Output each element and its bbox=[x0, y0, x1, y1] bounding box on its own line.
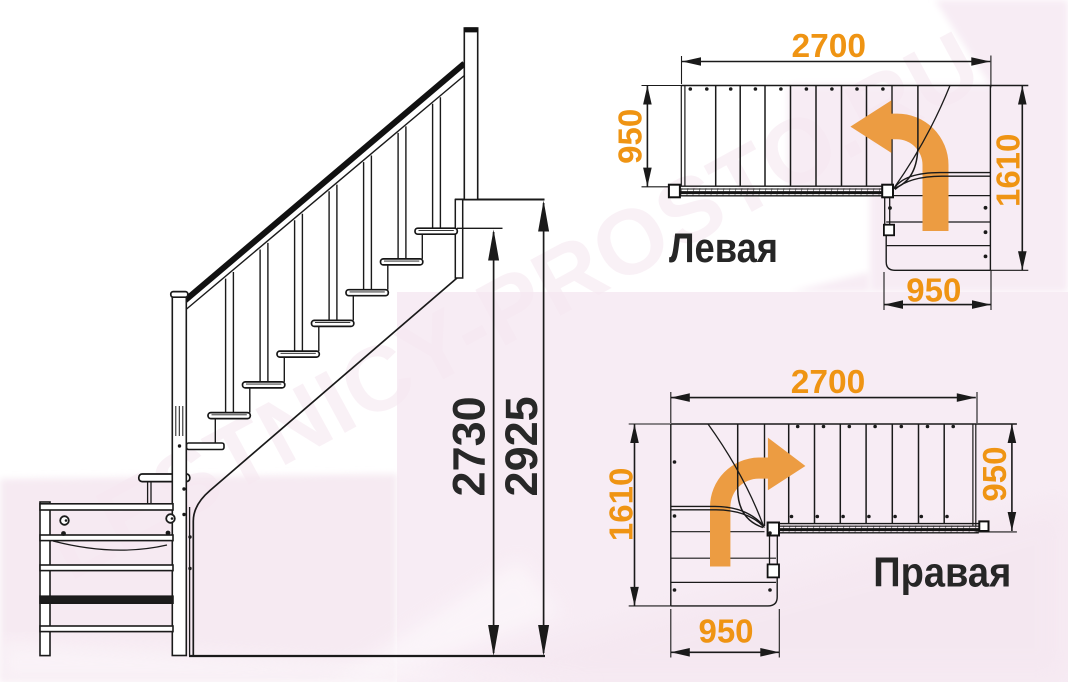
svg-text:2700: 2700 bbox=[791, 364, 866, 401]
svg-text:2700: 2700 bbox=[792, 28, 867, 65]
svg-text:1610: 1610 bbox=[603, 468, 640, 541]
svg-text:950: 950 bbox=[698, 612, 753, 649]
svg-text:2925: 2925 bbox=[496, 396, 547, 496]
svg-text:950: 950 bbox=[976, 447, 1013, 502]
svg-text:Правая: Правая bbox=[873, 548, 1011, 595]
svg-text:950: 950 bbox=[906, 271, 961, 308]
svg-text:1610: 1610 bbox=[990, 134, 1027, 207]
svg-text:950: 950 bbox=[612, 109, 649, 164]
svg-text:2730: 2730 bbox=[444, 396, 495, 496]
svg-text:Левая: Левая bbox=[669, 224, 778, 271]
